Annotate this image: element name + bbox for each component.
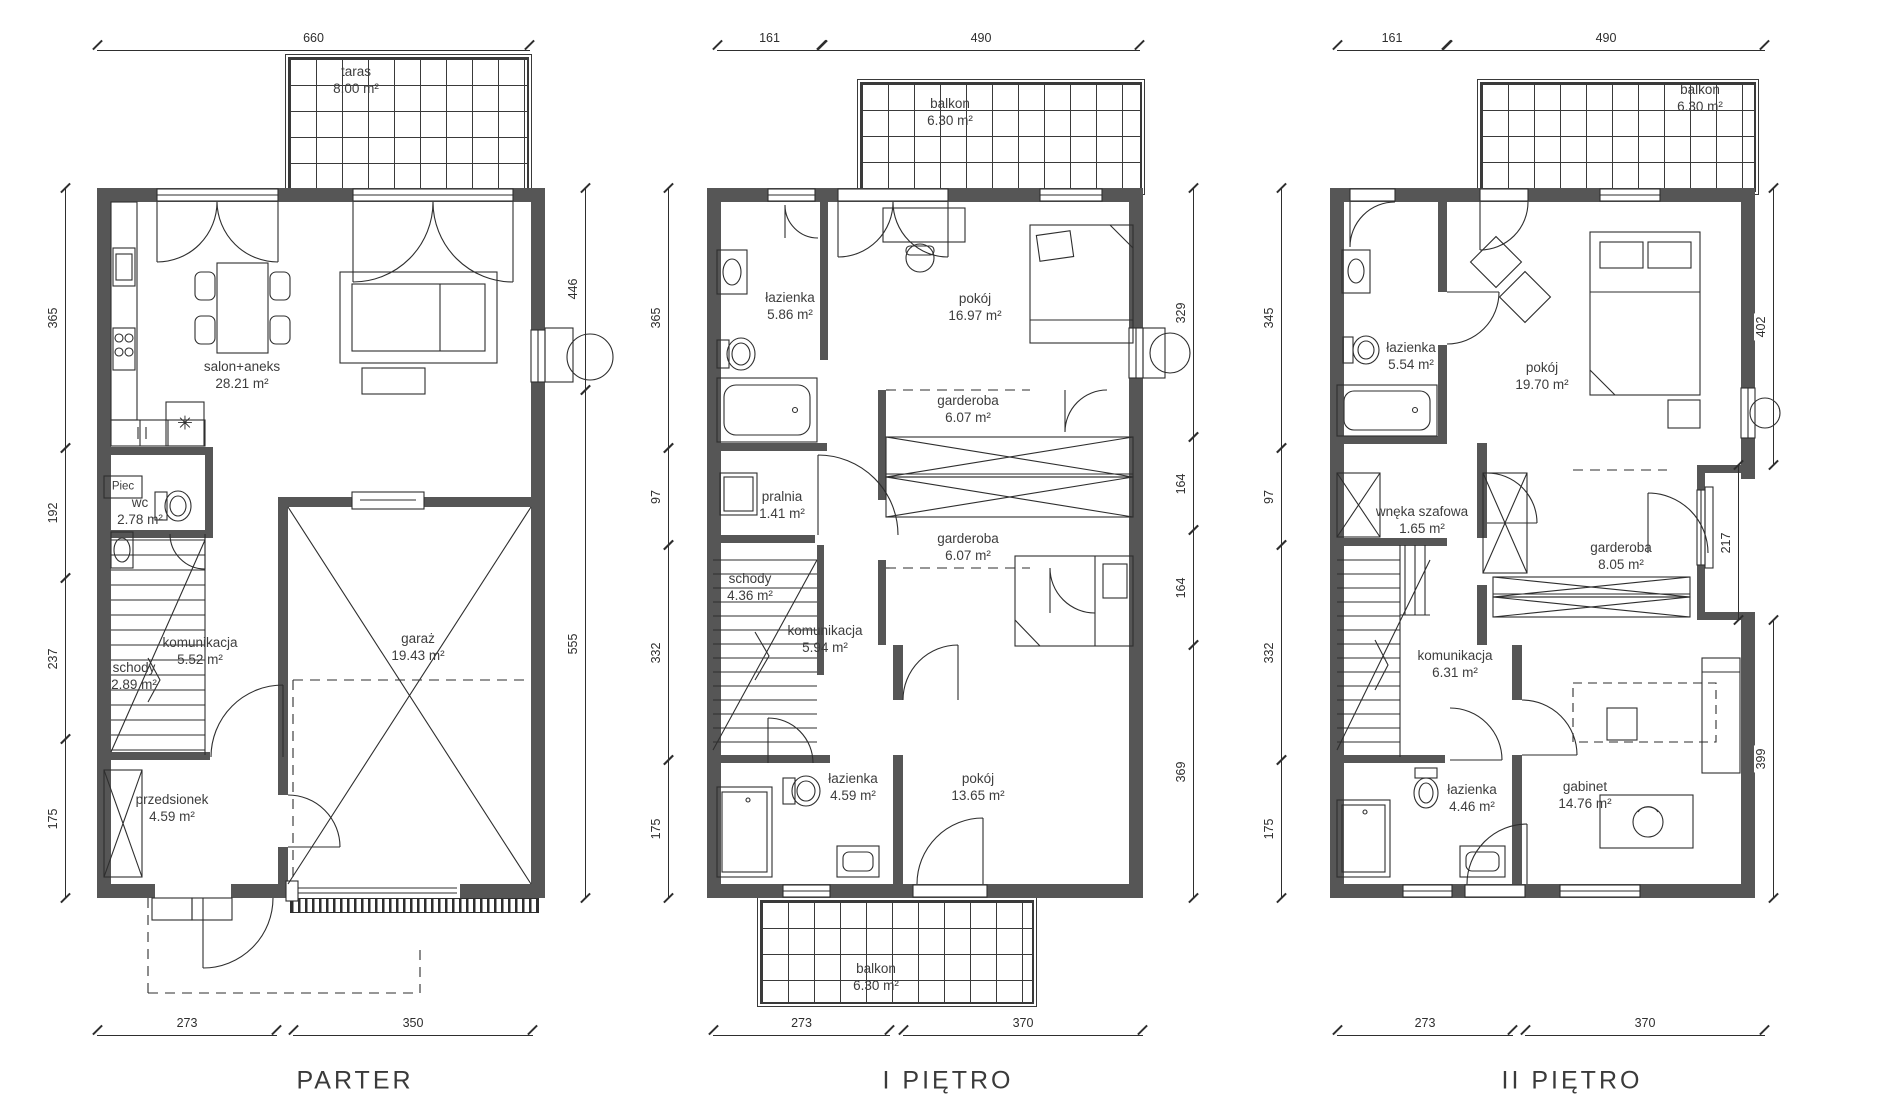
dim-p1-bottom-273: 273 <box>713 1035 890 1036</box>
room-label-lazienka-p2-dol: łazienka4.46 m² <box>1447 781 1497 815</box>
room-label-komunikacja-parter: komunikacja5.52 m² <box>162 634 237 668</box>
boiler-snowflake-icon: ✳ <box>177 413 193 436</box>
floor-title-parter: PARTER <box>296 1067 413 1096</box>
pietro2-walls <box>1330 188 1755 898</box>
dim-parter-bottom-350: 350 <box>293 1035 533 1036</box>
dim-parter-left-192: 192 <box>65 448 66 578</box>
dim-p2-bottom-370: 370 <box>1525 1035 1765 1036</box>
dim-p2-bottom-273: 273 <box>1337 1035 1513 1036</box>
dim-p2-top-161: 161 <box>1337 50 1447 51</box>
dim-p1-right-164a: 164 <box>1193 437 1194 530</box>
dim-p1-left-175: 175 <box>668 760 669 898</box>
dim-p1-bottom-370: 370 <box>903 1035 1143 1036</box>
room-label-lazienka-p1-top: łazienka5.86 m² <box>765 289 815 323</box>
room-label-garderoba2: garderoba6.07 m² <box>937 530 999 564</box>
dim-parter-top: 660 <box>97 50 530 51</box>
room-label-komunikacja-p1: komunikacja5.94 m² <box>787 622 862 656</box>
room-label-pokoj-p1-dol: pokój13.65 m² <box>951 770 1004 804</box>
dim-p2-left-332: 332 <box>1281 545 1282 760</box>
room-label-wc: wc2.78 m² <box>117 494 163 528</box>
dim-p1-top-161: 161 <box>717 50 822 51</box>
dim-p1-right-329: 329 <box>1193 188 1194 437</box>
dim-parter-left-175: 175 <box>65 739 66 898</box>
room-label-balkon-p2-top: balkon6.30 m² <box>1677 81 1723 115</box>
dim-parter-right-446: 446 <box>585 188 586 390</box>
dim-p1-right-164b: 164 <box>1193 530 1194 645</box>
floor-title-pietro1: I PIĘTRO <box>883 1067 1014 1096</box>
room-label-lazienka-p1-dol: łazienka4.59 m² <box>828 770 878 804</box>
room-label-garderoba1: garderoba6.07 m² <box>937 392 999 426</box>
room-label-salon: salon+aneks28.21 m² <box>204 358 280 392</box>
dim-p1-left-332: 332 <box>668 545 669 760</box>
dim-p2-right-402: 402 <box>1773 188 1774 465</box>
dim-p2-top-490: 490 <box>1447 50 1765 51</box>
dim-p2-left-345: 345 <box>1281 188 1282 448</box>
room-label-schody-p1: schody4.36 m² <box>727 570 773 604</box>
dim-p2-right-399: 399 <box>1773 620 1774 898</box>
dim-p2-right-217: 217 <box>1738 465 1739 620</box>
room-label-komunikacja-p2: komunikacja6.31 m² <box>1417 647 1492 681</box>
room-label-balkon-p1-top: balkon6.30 m² <box>927 95 973 129</box>
dim-p1-top-490: 490 <box>822 50 1140 51</box>
room-label-garderoba-p2: garderoba8.05 m² <box>1590 539 1652 573</box>
room-label-schody-parter: schody2.89 m² <box>111 659 157 693</box>
dim-p1-right-369: 369 <box>1193 645 1194 898</box>
dim-p1-left-365: 365 <box>668 188 669 448</box>
room-label-lazienka-p2-top: łazienka5.54 m² <box>1386 339 1436 373</box>
dim-parter-left-237: 237 <box>65 578 66 739</box>
dim-p2-left-97: 97 <box>1281 448 1282 545</box>
dim-parter-bottom-273: 273 <box>97 1035 277 1036</box>
room-label-pokoj-p2: pokój19.70 m² <box>1515 359 1568 393</box>
dim-parter-right-555: 555 <box>585 390 586 898</box>
room-label-przedsionek: przedsionek4.59 m² <box>136 791 209 825</box>
room-label-balkon-p1-dol: balkon6.30 m² <box>853 960 899 994</box>
room-label-piec: Piec <box>112 481 134 494</box>
room-label-garaz: garaż19.43 m² <box>391 630 444 664</box>
dim-p2-left-175: 175 <box>1281 760 1282 898</box>
dim-p1-left-97: 97 <box>668 448 669 545</box>
room-label-taras: taras8.00 m² <box>333 63 379 97</box>
floorplan-sheet: { "meta": { "background": "#ffffff", "wa… <box>0 0 1900 1112</box>
dim-parter-left-365: 365 <box>65 188 66 448</box>
room-label-pralnia: pralnia1.41 m² <box>759 488 805 522</box>
room-label-wneka: wnęka szafowa1.65 m² <box>1376 503 1468 537</box>
room-label-gabinet: gabinet14.76 m² <box>1558 778 1611 812</box>
room-label-pokoj-p1-top: pokój16.97 m² <box>948 290 1001 324</box>
floor-title-pietro2: II PIĘTRO <box>1502 1067 1643 1096</box>
